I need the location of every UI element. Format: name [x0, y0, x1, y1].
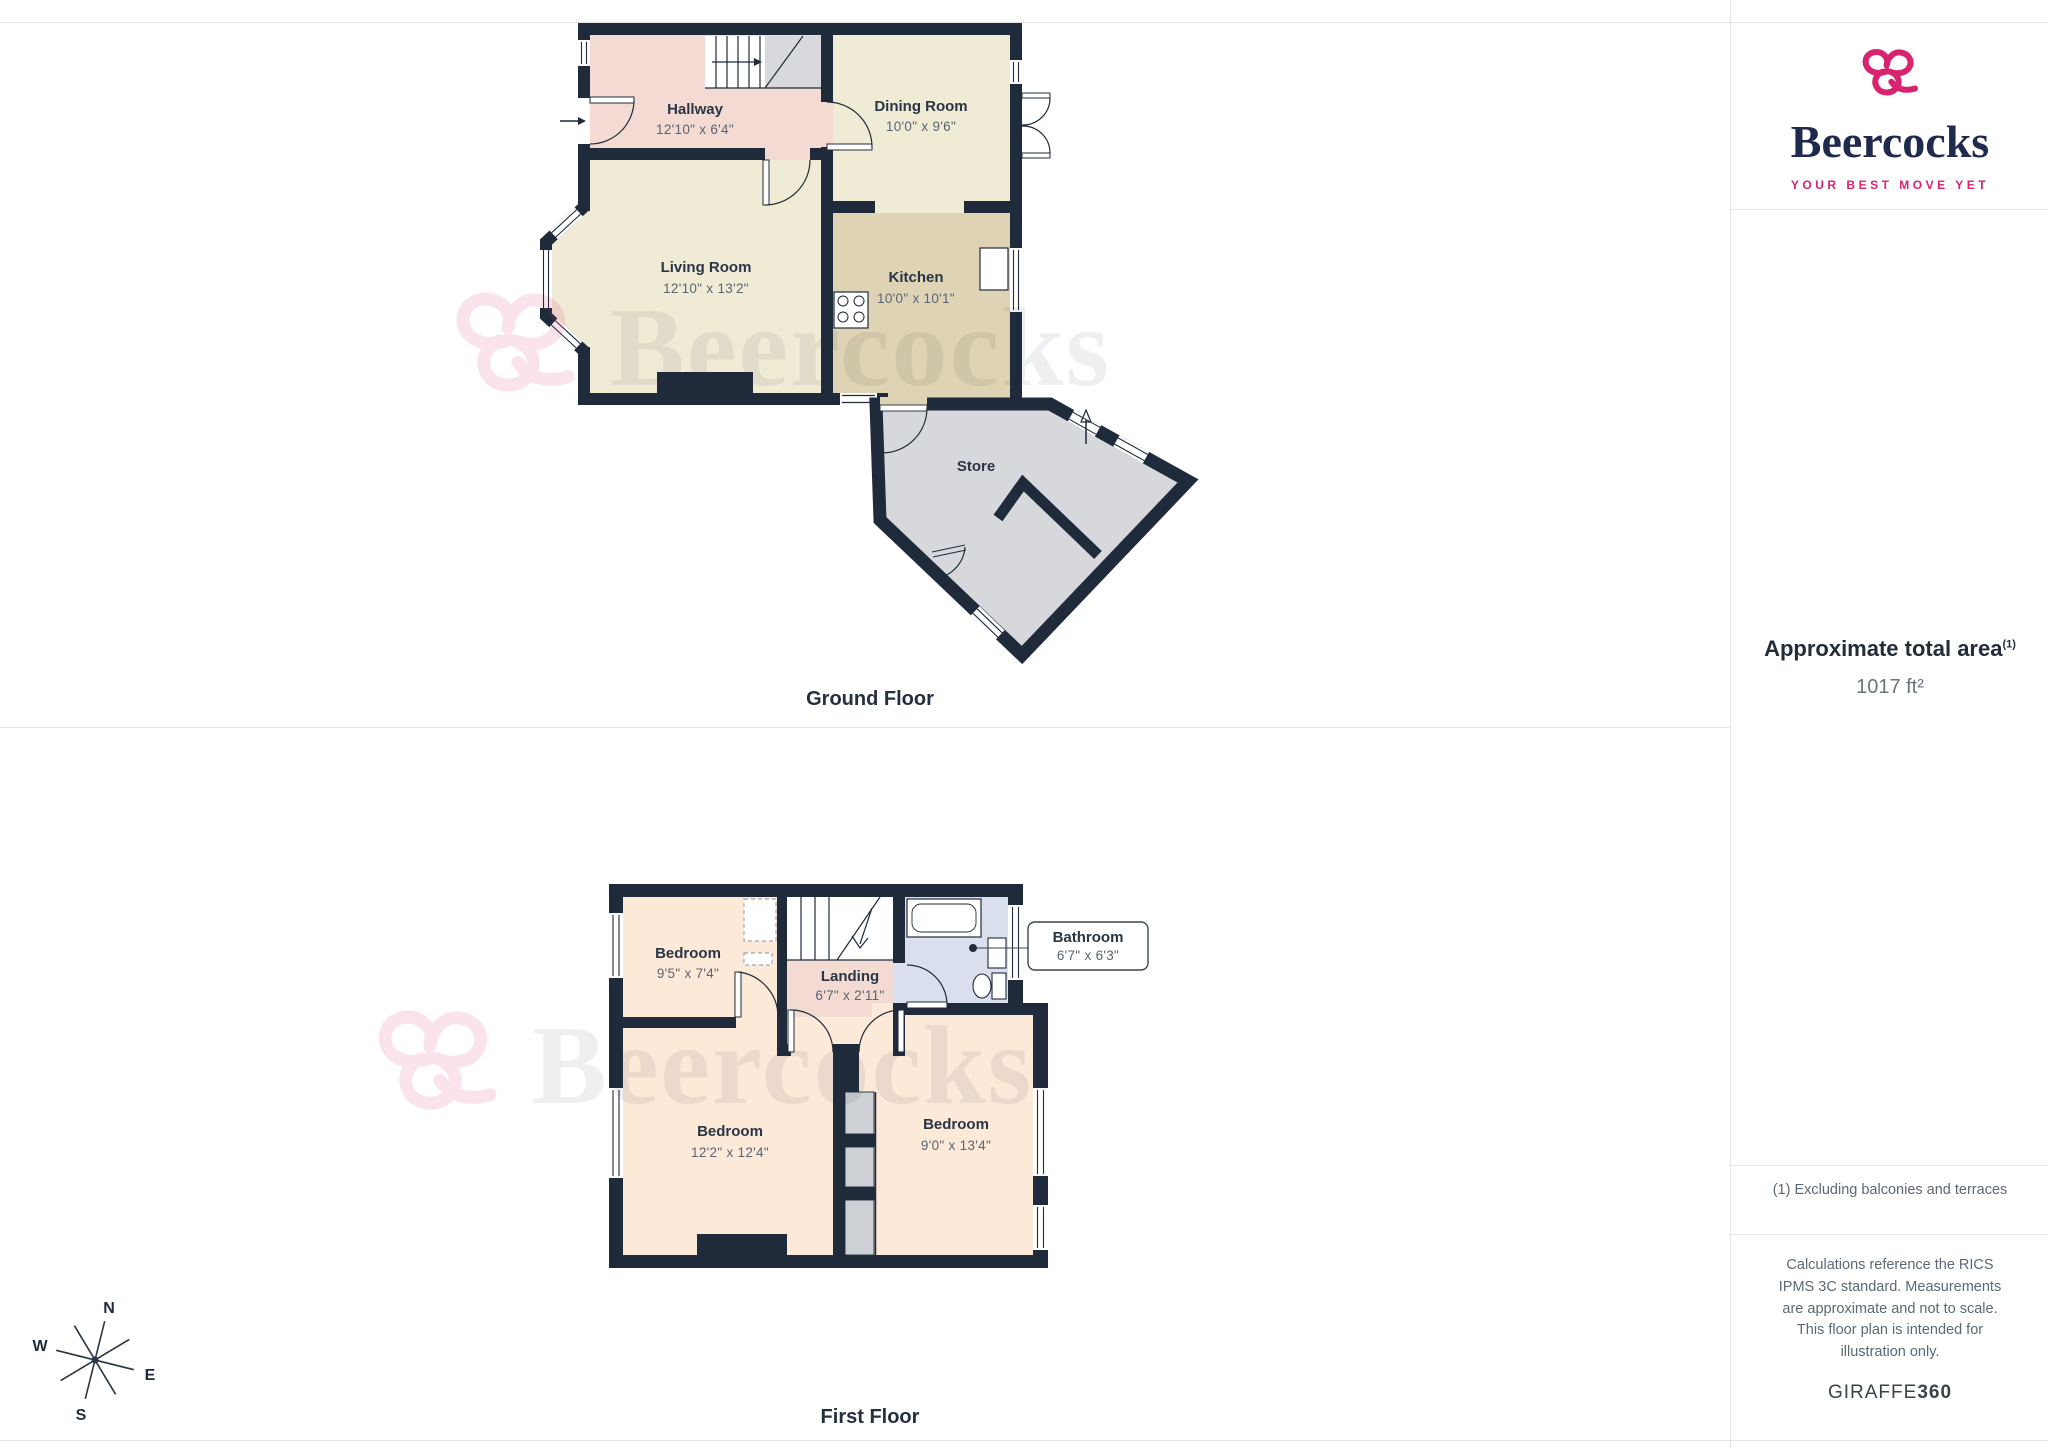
bedroom1-label: Bedroom — [655, 945, 721, 962]
landing-label: Landing — [821, 968, 879, 985]
ground-floor-room-fills — [546, 23, 1188, 655]
toilet-icon — [973, 974, 991, 998]
total-area-note-ref: (1) — [2002, 639, 2015, 651]
store-label: Store — [957, 458, 995, 475]
total-area-value: 1017 ft² — [1731, 676, 2048, 699]
chimney-breast — [657, 372, 753, 394]
ground-floor-caption: Ground Floor — [520, 688, 1220, 711]
chimney-breast — [697, 1234, 787, 1255]
living-dims: 12'10" x 13'2" — [663, 281, 749, 296]
hallway-label: Hallway — [667, 101, 724, 118]
brand-logo: Beercocks YOUR BEST MOVE YET — [1731, 44, 2048, 192]
credit-number: 360 — [1917, 1382, 1952, 1403]
brand-name: Beercocks — [1731, 115, 2048, 168]
compass-rose-icon: N E S W — [30, 1292, 160, 1422]
floorplan-sheet: Hallway 12'10" x 6'4" Dining Room 10'0" … — [0, 0, 2048, 1448]
landing-dims: 6'7" x 2'11" — [815, 988, 884, 1003]
disclaimer-text: Calculations reference the RICS IPMS 3C … — [1770, 1255, 2010, 1364]
sidebar-divider-2 — [1731, 1165, 2048, 1166]
first-floor-plan: Bathroom 6'7" x 6'3" Bedroom 9'5" x 7'4"… — [520, 860, 1280, 1420]
giraffe360-credit: GIRAFFE360 — [1731, 1382, 2048, 1404]
area-footnote: (1) Excluding balconies and terraces — [1731, 1182, 2048, 1198]
compass-east: E — [145, 1367, 156, 1384]
cupboards — [845, 1092, 876, 1255]
compass-south: S — [76, 1407, 87, 1422]
bedroom2-dims: 12'2" x 12'4" — [691, 1145, 769, 1160]
bathroom-label: Bathroom — [1053, 929, 1124, 946]
room-bedroom-2 — [609, 1017, 872, 1268]
living-label: Living Room — [661, 259, 752, 276]
sidebar-divider-3 — [1731, 1234, 2048, 1235]
sidebar-divider-1 — [1731, 209, 2048, 210]
bedroom3-dims: 9'0" x 13'4" — [921, 1138, 991, 1153]
info-sidebar: Beercocks YOUR BEST MOVE YET Approximate… — [1730, 0, 2048, 1448]
sink-icon — [988, 938, 1006, 968]
credit-name: GIRAFFE — [1828, 1382, 1917, 1403]
total-area-title-text: Approximate total area — [1764, 636, 2002, 661]
callout-leader-dot — [969, 944, 977, 952]
compass-west: W — [32, 1338, 48, 1355]
bedroom3-label: Bedroom — [923, 1116, 989, 1133]
total-area-title: Approximate total area(1) — [1731, 636, 2048, 662]
stairwell — [787, 897, 893, 960]
watermark-heart-icon — [362, 1000, 512, 1132]
compass-north: N — [103, 1300, 115, 1317]
toilet-tank — [992, 973, 1006, 999]
closet — [744, 899, 776, 965]
dining-label: Dining Room — [874, 98, 967, 115]
counter — [980, 248, 1008, 290]
floors-divider — [0, 727, 1730, 728]
kitchen-label: Kitchen — [888, 269, 943, 286]
bathroom-dims: 6'7" x 6'3" — [1057, 948, 1119, 963]
bedroom2-label: Bedroom — [697, 1123, 763, 1140]
bedroom1-dims: 9'5" x 7'4" — [657, 966, 719, 981]
kitchen-dims: 10'0" x 10'1" — [877, 291, 955, 306]
brand-heart-icon — [1854, 44, 1926, 106]
brand-tagline: YOUR BEST MOVE YET — [1731, 178, 2048, 192]
hallway-dims: 12'10" x 6'4" — [656, 122, 734, 137]
total-area-block: Approximate total area(1) 1017 ft² — [1731, 636, 2048, 699]
dining-dims: 10'0" x 9'6" — [886, 119, 956, 134]
ground-floor-plan: Hallway 12'10" x 6'4" Dining Room 10'0" … — [520, 10, 1280, 700]
first-floor-caption: First Floor — [520, 1406, 1220, 1429]
staircase — [705, 36, 823, 88]
